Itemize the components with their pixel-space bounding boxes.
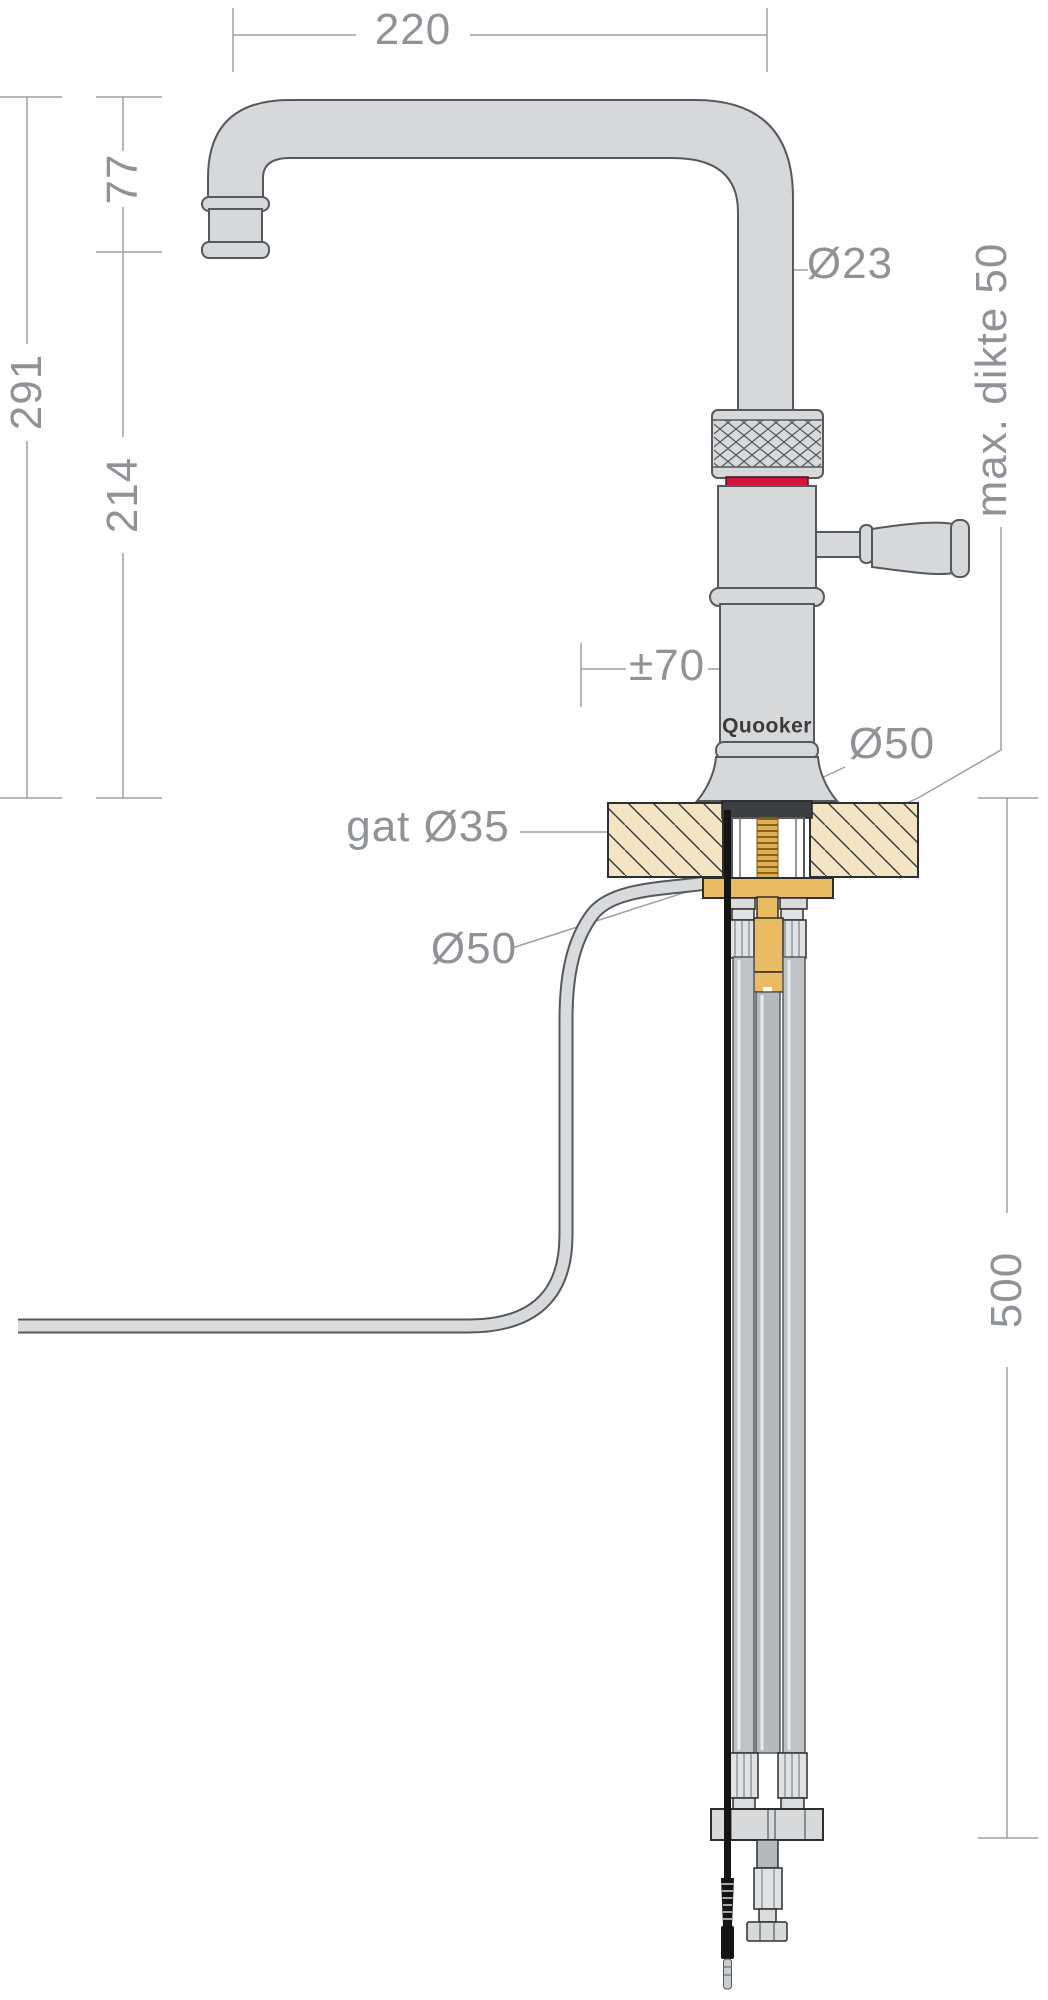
handle-grip [872, 523, 953, 574]
dim-label-spout-diameter: Ø23 [807, 242, 893, 286]
fixing-hardware [703, 878, 833, 992]
faucet-spout [202, 100, 793, 412]
hose-middle [756, 992, 780, 1753]
handle-stem [814, 532, 866, 557]
faucet-body [697, 410, 837, 801]
brass-rod [757, 897, 778, 919]
dim-220-line [233, 8, 767, 72]
base-seal [722, 801, 812, 818]
hose-right [783, 957, 805, 1753]
countertop-right [810, 803, 918, 877]
supply-cable [18, 879, 731, 1326]
countertop-left [608, 803, 723, 877]
dim-label-under-counter-depth: 500 [985, 1252, 1029, 1328]
drawing-artwork [0, 0, 1048, 2000]
brass-block [754, 918, 783, 972]
dim-label-washer-diameter: Ø50 [431, 927, 517, 971]
hoses [733, 957, 805, 1753]
jack-tip [724, 1959, 732, 1989]
spout-tube [208, 100, 793, 412]
spout-tip-outlet [202, 242, 269, 258]
technical-drawing-canvas: 220 77 291 214 Ø23 max. dikte 50 ±70 Quo… [0, 0, 1048, 2000]
dim-label-base-diameter: Ø50 [849, 722, 935, 766]
dim-291-line [0, 97, 62, 798]
dim-label-swivel-offset: ±70 [629, 644, 705, 688]
handle-endcap [951, 520, 969, 577]
knurled-knob-texture [714, 420, 821, 467]
spout-tip-tube [209, 209, 262, 244]
tank-shank [732, 818, 804, 878]
jack-plug-body [721, 1926, 734, 1959]
hose-left [733, 957, 754, 1753]
dim-label-spout-reach: 220 [375, 8, 451, 52]
dim-label-total-height: 291 [5, 354, 49, 430]
quooker-logo: Quooker [722, 716, 812, 737]
threaded-rod [757, 818, 778, 878]
dim-label-body-height: 214 [101, 457, 145, 533]
hex-end-cap [747, 1922, 787, 1941]
handle [814, 520, 969, 577]
dim-label-hole-diameter: gat Ø35 [346, 805, 510, 849]
upper-body [718, 486, 816, 590]
dim-label-spout-drop: 77 [101, 154, 145, 205]
dim-label-max-counter-thickness: max. dikte 50 [970, 243, 1014, 518]
base-flare [697, 757, 837, 801]
brass-washer-plate [703, 878, 833, 898]
